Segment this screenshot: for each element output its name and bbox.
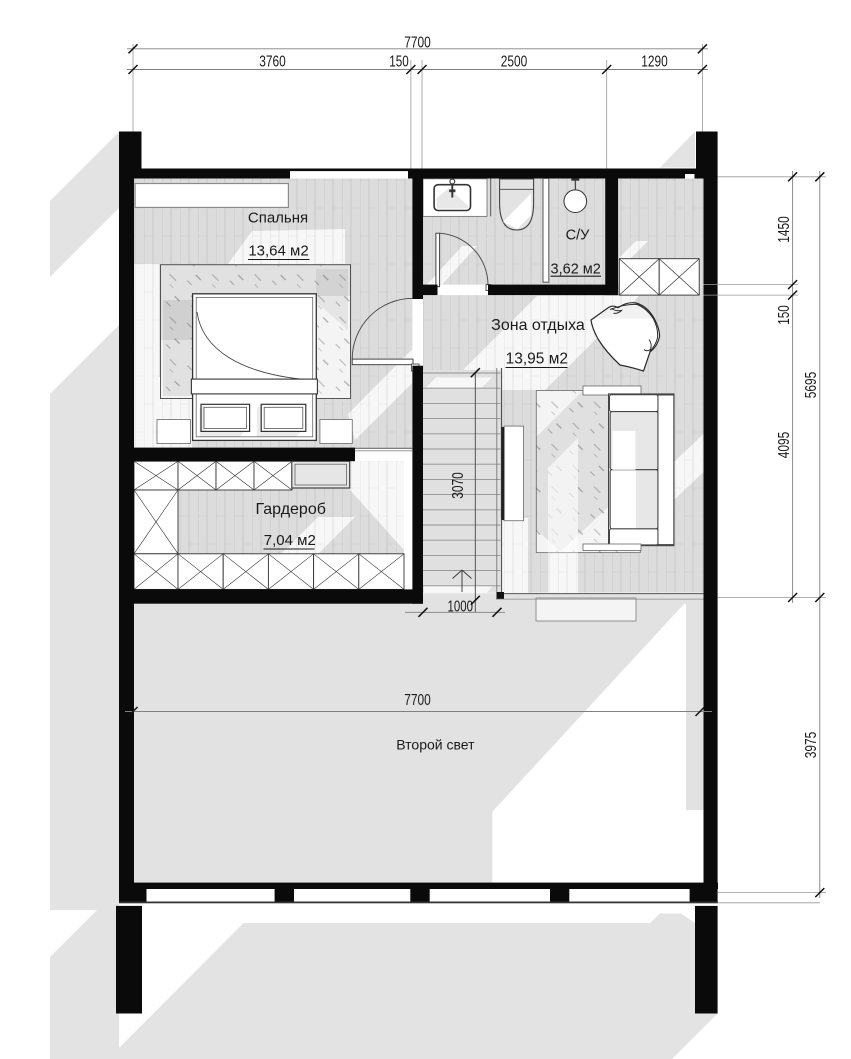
svg-text:3070: 3070 — [450, 472, 467, 499]
svg-text:3975: 3975 — [803, 732, 820, 759]
svg-text:1450: 1450 — [776, 216, 793, 243]
svg-text:5695: 5695 — [803, 372, 820, 399]
svg-text:150: 150 — [776, 305, 793, 325]
svg-text:3,62 м2: 3,62 м2 — [551, 262, 601, 278]
svg-text:7700: 7700 — [404, 34, 431, 51]
svg-text:С/У: С/У — [566, 228, 591, 244]
svg-text:Второй свет: Второй свет — [396, 737, 475, 753]
svg-text:7,04 м2: 7,04 м2 — [264, 532, 316, 549]
svg-text:Спальня: Спальня — [248, 210, 308, 227]
svg-text:7700: 7700 — [404, 692, 431, 709]
svg-text:13,64 м2: 13,64 м2 — [248, 243, 308, 260]
svg-text:Гардероб: Гардероб — [256, 501, 326, 518]
svg-text:2500: 2500 — [501, 54, 528, 71]
svg-text:1000: 1000 — [447, 598, 473, 615]
svg-text:13,95 м2: 13,95 м2 — [506, 351, 568, 368]
svg-text:1290: 1290 — [641, 54, 668, 71]
svg-text:4095: 4095 — [776, 432, 793, 459]
svg-text:150: 150 — [389, 54, 409, 71]
svg-text:3760: 3760 — [259, 54, 286, 71]
svg-text:Зона отдыха: Зона отдыха — [491, 317, 585, 334]
